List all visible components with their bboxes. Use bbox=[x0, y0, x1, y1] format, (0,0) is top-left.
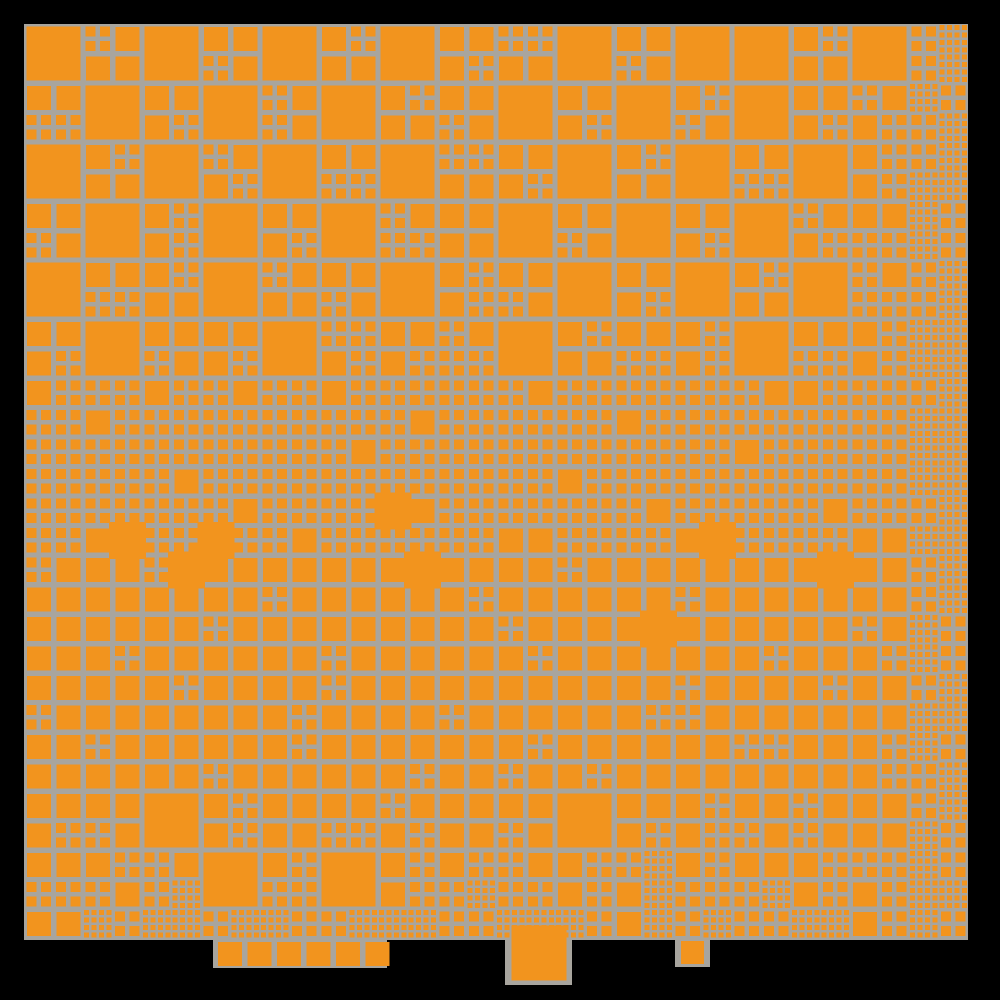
halftone-mosaic-canvas bbox=[0, 0, 1000, 1000]
screenshot-root bbox=[0, 0, 1000, 1000]
